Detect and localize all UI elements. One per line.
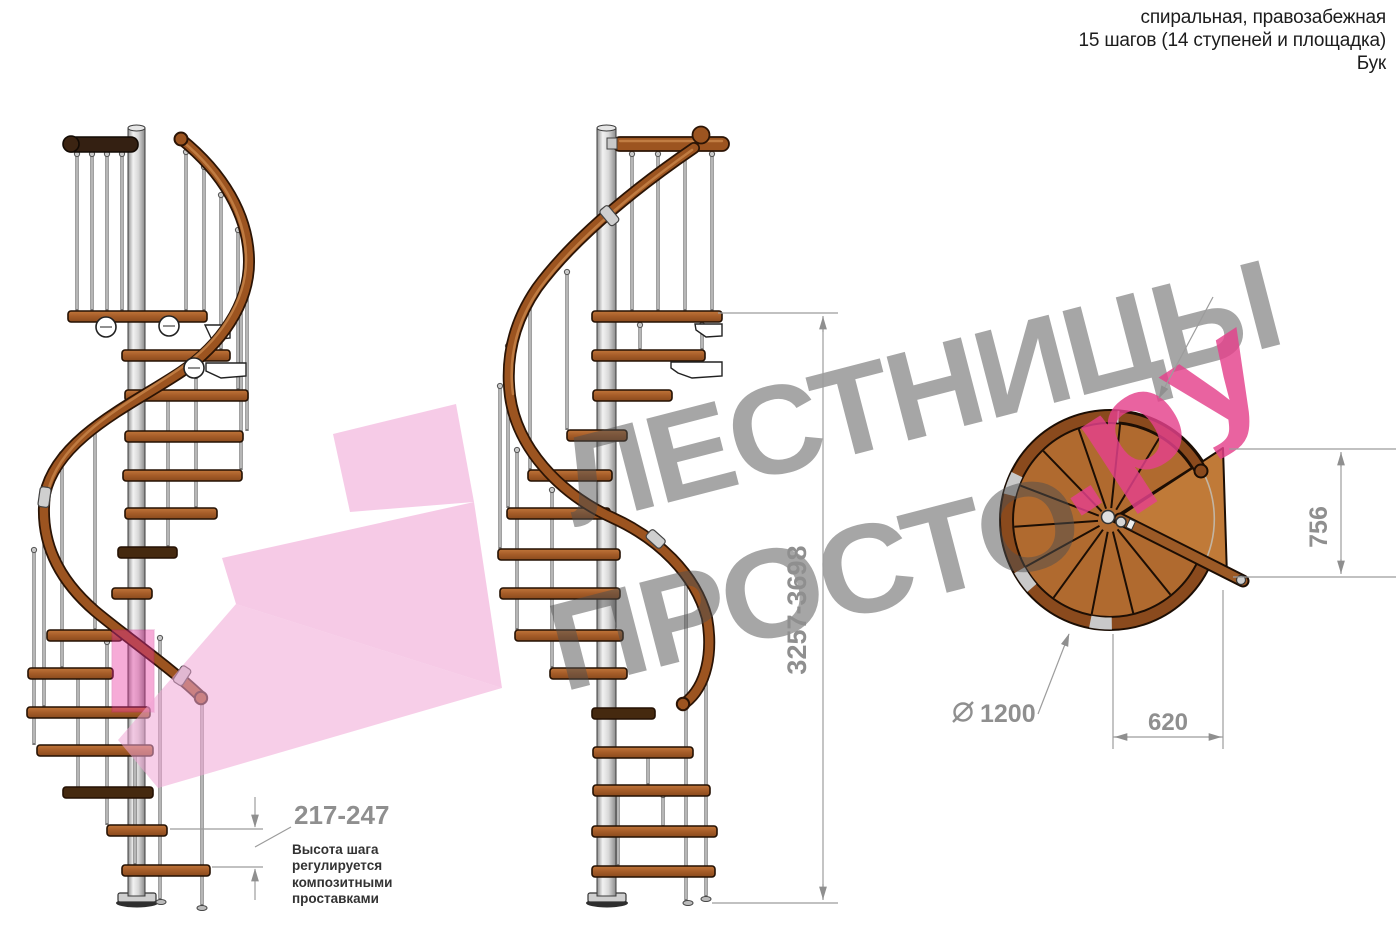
dim-diameter-label: 1200 <box>980 700 1036 728</box>
dim-landing-depth-label: 756 <box>1305 506 1333 548</box>
title-line-steps: 15 шагов (14 ступеней и площадка) <box>1079 29 1387 52</box>
dim-total-height-label: 3257-3698 <box>782 545 812 674</box>
pink-ribbon-watermark <box>112 404 502 788</box>
left-mounting-plates <box>96 316 204 378</box>
left-side-view <box>27 125 250 911</box>
title-block: спиральная, правозабежная 15 шагов (14 с… <box>1079 6 1387 75</box>
staircase-drawing: ЛЕСТНИЦЫ ПРОСТО .ру 3257-3698 <box>0 0 1400 951</box>
text-watermark: ЛЕСТНИЦЫ ПРОСТО .ру <box>534 233 1293 719</box>
dim-landing-depth: 756 <box>1229 449 1396 577</box>
dim-step-height-label: 217-247 <box>294 800 389 830</box>
module-highlight <box>112 630 154 712</box>
title-line-type: спиральная, правозабежная <box>1079 6 1387 29</box>
step-height-note: Высота шага регулируется композитными пр… <box>292 842 402 908</box>
dim-diameter: 1200 <box>953 634 1069 728</box>
title-line-material: Бук <box>1079 52 1387 75</box>
technical-drawing-page: ЛЕСТНИЦЫ ПРОСТО .ру 3257-3698 <box>0 0 1400 951</box>
dim-step-width-label: 620 <box>1148 709 1188 736</box>
